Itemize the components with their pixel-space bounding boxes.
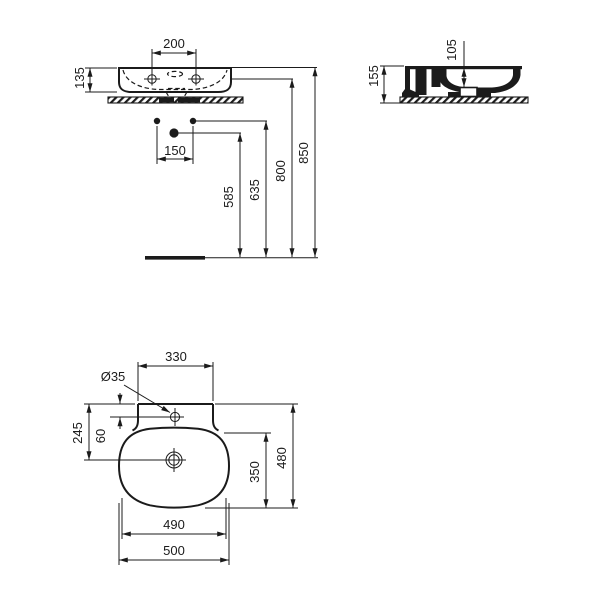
dim-basin-height: 135 <box>72 67 117 92</box>
technical-drawing-page: 200 135 150 585 635 800 <box>0 0 603 603</box>
tap-hole-icon-right <box>188 73 204 86</box>
dim-total-depth: 480 <box>205 404 298 508</box>
dim-label-135: 135 <box>72 67 87 89</box>
strip-solid-segment <box>178 98 200 103</box>
dim-label-635: 635 <box>247 179 262 201</box>
dim-label-850: 850 <box>296 142 311 164</box>
plan-view: 330 Ø35 245 60 480 350 <box>70 349 298 565</box>
dim-label-480: 480 <box>274 447 289 469</box>
strip-solid-segment <box>159 98 174 103</box>
mounting-strip <box>108 97 243 103</box>
dim-label-150: 150 <box>164 143 186 158</box>
tap-hole-icon-left <box>144 73 160 86</box>
fixing-channel-block <box>416 68 427 95</box>
drain-outlet <box>460 88 477 97</box>
dim-label-330: 330 <box>165 349 187 364</box>
overflow-slot-icon <box>168 71 183 76</box>
bowl-hidden-line <box>123 70 227 90</box>
dim-label-585: 585 <box>221 186 236 208</box>
bowl-shell-section <box>439 68 521 93</box>
front-view: 200 135 150 585 635 800 <box>72 36 318 258</box>
dim-label-60: 60 <box>93 429 108 443</box>
dim-label-105: 105 <box>444 39 459 61</box>
tap-hole-icon-plan <box>166 408 184 426</box>
side-view: 155 105 <box>366 39 528 103</box>
foot-block <box>477 92 491 97</box>
mounting-strip-side <box>400 97 528 103</box>
dim-total-height: 155 <box>366 65 404 103</box>
dim-bowl-width: 490 <box>122 498 226 539</box>
dim-label-500: 500 <box>163 543 185 558</box>
dim-back-to-drain: 245 <box>70 404 162 460</box>
foot-block <box>448 92 460 97</box>
dim-label-d35: Ø35 <box>101 369 126 384</box>
dim-label-350: 350 <box>247 461 262 483</box>
dim-label-245: 245 <box>70 422 85 444</box>
dim-label-200: 200 <box>163 36 185 51</box>
callout-tap-hole-diameter: Ø35 <box>101 369 170 413</box>
dim-label-155: 155 <box>366 65 381 87</box>
dim-bowl-length: 350 <box>224 433 271 508</box>
dim-back-ledge-width: 330 <box>138 349 213 401</box>
drain-icon-plan <box>162 448 186 472</box>
washbasin-dimension-drawing: 200 135 150 585 635 800 <box>0 0 603 603</box>
dim-label-800: 800 <box>273 160 288 182</box>
fixing-dot-left <box>154 118 160 124</box>
dim-label-490: 490 <box>163 517 185 532</box>
